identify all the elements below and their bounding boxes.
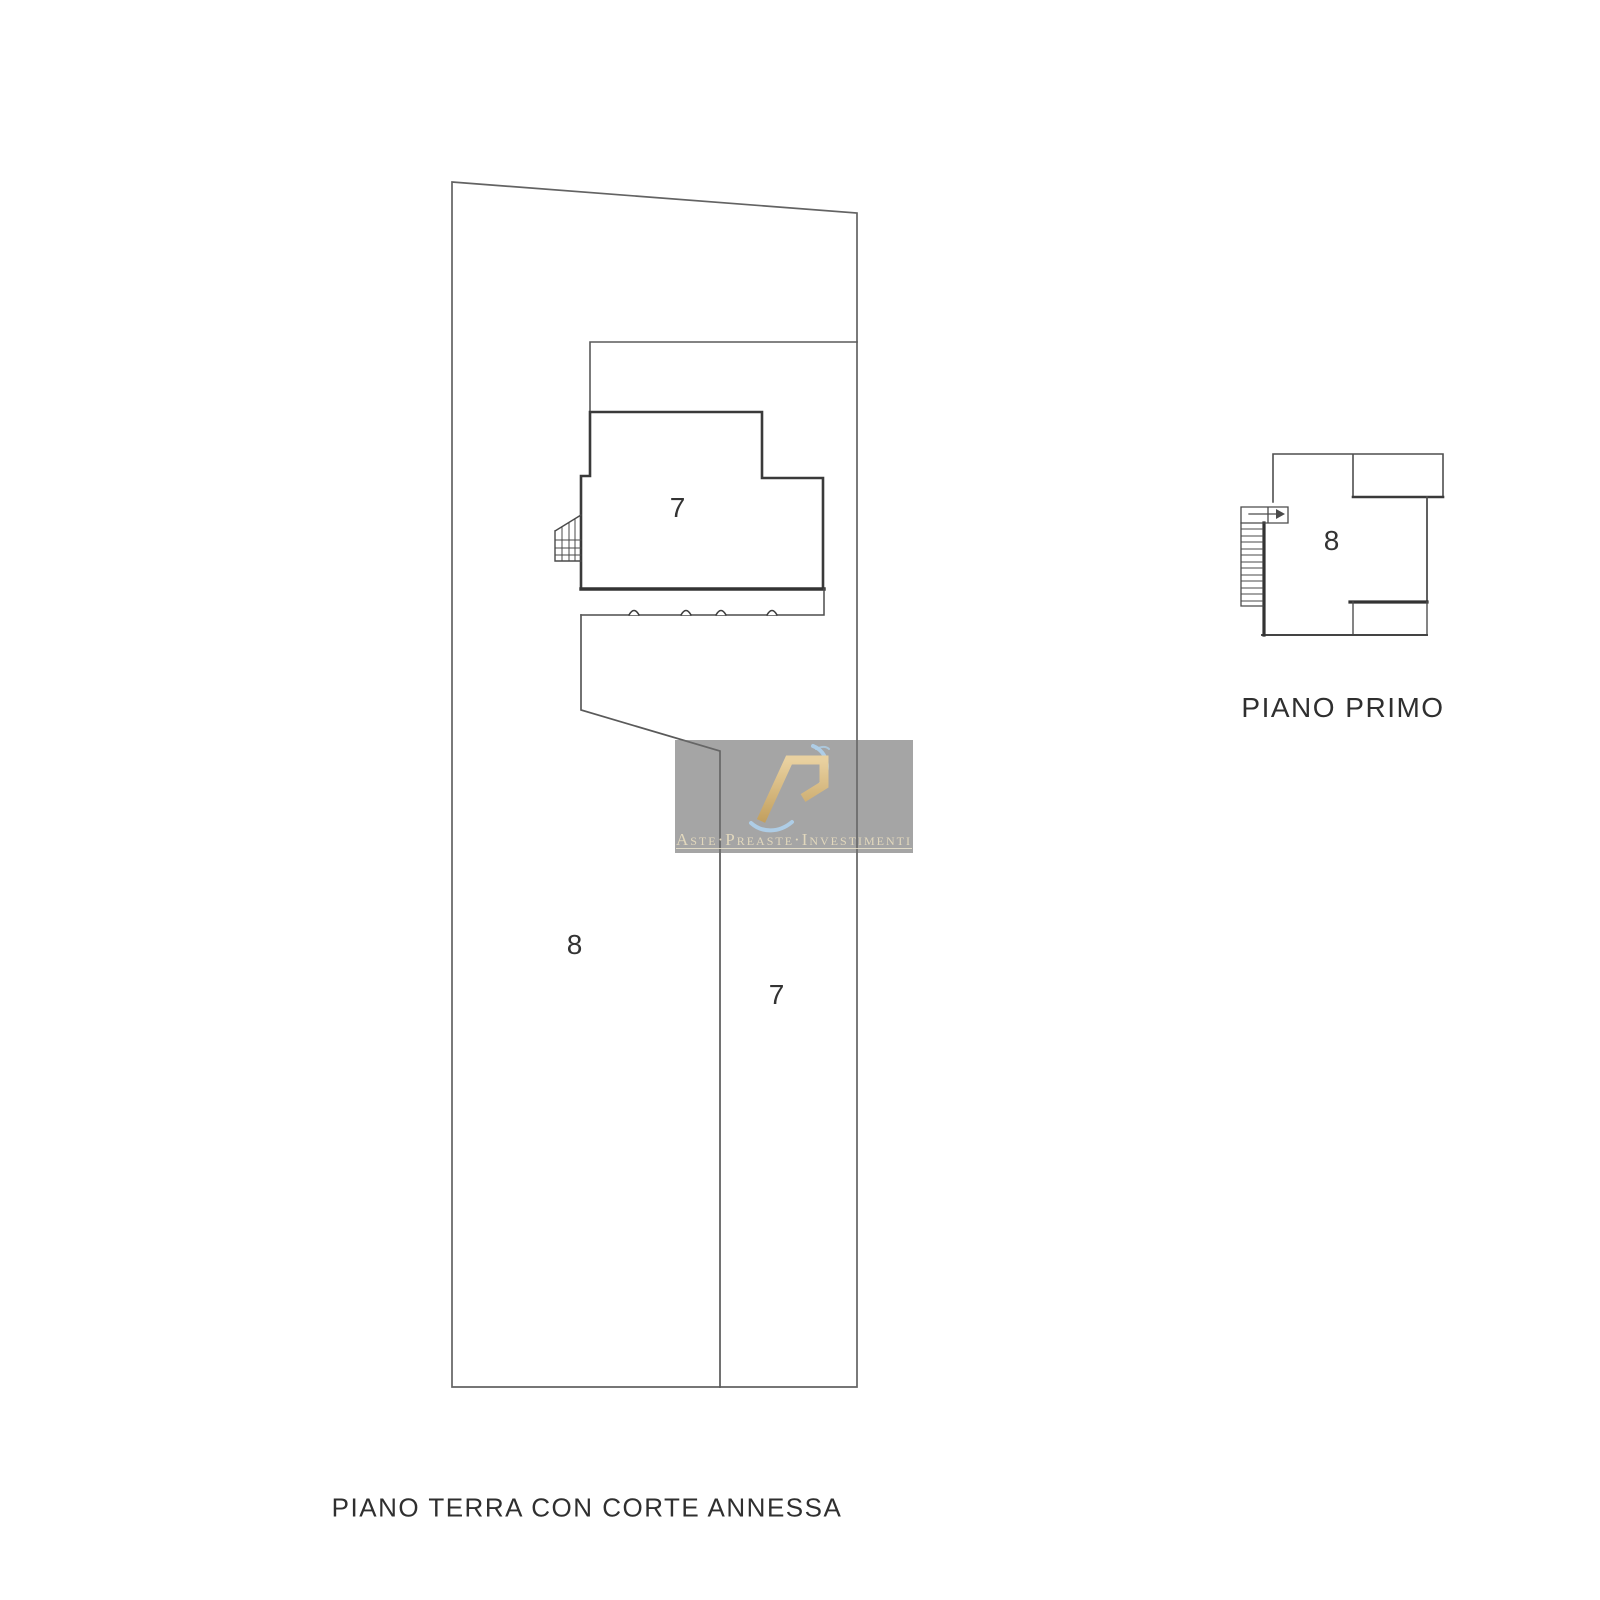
ground-floor-courtyard-label: 8 xyxy=(567,929,584,961)
balcony-parapet xyxy=(1353,602,1427,635)
courtyard-division xyxy=(581,615,720,1387)
inner-boundary-line xyxy=(590,342,857,412)
first-floor-plan xyxy=(1241,454,1443,635)
first-floor-staircase xyxy=(1241,523,1263,606)
brand-monogram-icon xyxy=(675,740,913,835)
porch-edge xyxy=(581,589,824,615)
floor-plan-document: 7 8 7 8 PIANO TERRA CON CORTE ANNESSA PI… xyxy=(0,0,1600,1600)
stair-arrowhead-icon xyxy=(1276,509,1285,519)
building-walls xyxy=(581,412,823,589)
agency-watermark: Aste·Preaste·Investimenti xyxy=(675,740,913,853)
ground-floor-building-label: 7 xyxy=(670,492,687,524)
ground-floor-corridor-label: 7 xyxy=(769,979,786,1011)
ground-floor-stairs xyxy=(555,515,581,561)
brand-text: Aste·Preaste·Investimenti xyxy=(675,830,913,850)
first-floor-caption: PIANO PRIMO xyxy=(1241,692,1444,724)
ground-floor-caption: PIANO TERRA CON CORTE ANNESSA xyxy=(332,1493,843,1524)
first-floor-outline-top xyxy=(1273,454,1443,502)
first-floor-room-label: 8 xyxy=(1324,525,1341,557)
stair-landing xyxy=(1241,507,1288,523)
